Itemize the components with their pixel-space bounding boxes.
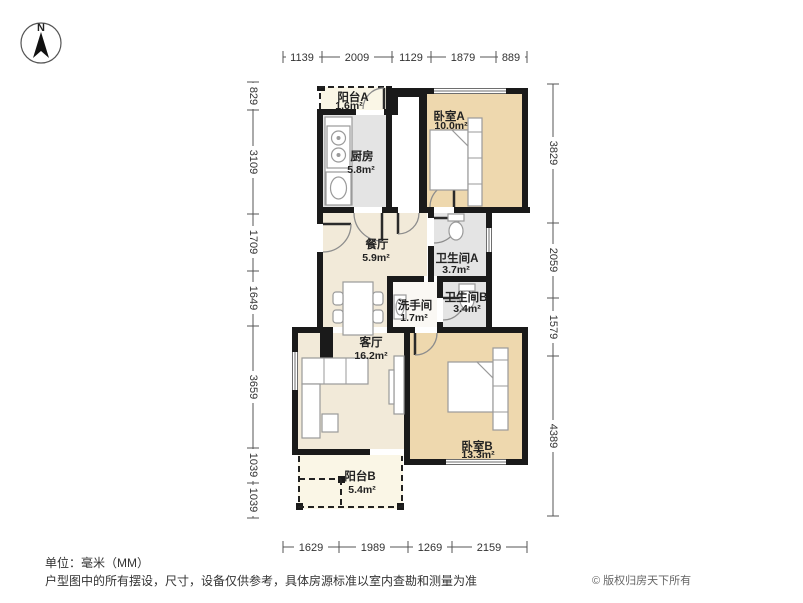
dim-top-2: 1129 bbox=[399, 52, 423, 64]
toilet-icon bbox=[448, 214, 464, 240]
floorplan-page: N bbox=[0, 0, 803, 603]
kitchen-counter-icon bbox=[325, 117, 352, 205]
disclaimer-text: 户型图中的所有摆设，尺寸，设备仅供参考，具体房源标准以室内查勘和测量为准 bbox=[45, 573, 477, 588]
coffee-table-icon bbox=[322, 414, 338, 432]
dim-top-3: 1879 bbox=[451, 52, 475, 64]
dimension-left: 829 3109 1709 1649 3659 1039 1039 bbox=[246, 82, 261, 518]
dining-area: 5.9m² bbox=[362, 252, 390, 264]
dim-right-0: 3829 bbox=[547, 141, 559, 165]
bathroom-b-area: 3.4m² bbox=[453, 303, 481, 315]
dim-top-4: 889 bbox=[502, 52, 520, 64]
wardrobe-icon bbox=[468, 118, 482, 206]
dim-top-1: 2009 bbox=[345, 52, 369, 64]
kitchen-area: 5.8m² bbox=[347, 164, 375, 176]
balcony-b-label: 阳台B bbox=[344, 469, 375, 483]
bedroom-b-area: 13.3m² bbox=[461, 449, 495, 461]
washroom-area: 1.7m² bbox=[400, 312, 428, 324]
bathroom-a-area: 3.7m² bbox=[442, 264, 470, 276]
dim-left-2: 1709 bbox=[247, 230, 259, 254]
window bbox=[292, 352, 298, 390]
dim-top-0: 1139 bbox=[290, 52, 314, 64]
dim-left-3: 1649 bbox=[247, 286, 259, 310]
wardrobe-icon bbox=[493, 348, 508, 430]
dim-right-2: 1579 bbox=[547, 315, 559, 339]
dim-left-1: 3109 bbox=[247, 150, 259, 174]
dim-left-0: 829 bbox=[247, 87, 259, 105]
living-area: 16.2m² bbox=[354, 350, 388, 362]
compass-icon: N bbox=[21, 22, 61, 63]
bathroom-a-label: 卫生间A bbox=[436, 251, 479, 265]
bed-icon bbox=[430, 130, 468, 190]
dim-right-1: 2059 bbox=[547, 248, 559, 272]
bedroom-a-area: 10.0m² bbox=[434, 120, 468, 132]
dim-left-5: 1039 bbox=[247, 453, 259, 477]
balcony-b-area: 5.4m² bbox=[348, 484, 376, 496]
window bbox=[434, 88, 506, 94]
washroom-label: 洗手间 bbox=[398, 298, 433, 312]
balcony-a-area: 1.6m² bbox=[335, 100, 363, 112]
kitchen-label: 厨房 bbox=[351, 149, 374, 163]
dim-bottom-0: 1629 bbox=[299, 542, 323, 554]
dim-bottom-1: 1989 bbox=[361, 542, 385, 554]
copyright-text: © 版权归房天下所有 bbox=[592, 573, 691, 587]
dim-right-3: 4389 bbox=[547, 424, 559, 448]
window bbox=[486, 228, 492, 252]
dimension-top: 1139 2009 1129 1879 889 bbox=[283, 50, 527, 64]
dim-bottom-2: 1269 bbox=[418, 542, 442, 554]
floorplan-canvas: N bbox=[0, 0, 803, 603]
dim-left-6: 1039 bbox=[247, 488, 259, 512]
dimension-right: 3829 2059 1579 4389 bbox=[546, 84, 561, 516]
dimension-bottom: 1629 1989 1269 2159 bbox=[283, 540, 527, 554]
dim-bottom-3: 2159 bbox=[477, 542, 501, 554]
bed-icon bbox=[448, 362, 493, 412]
dining-label: 餐厅 bbox=[365, 237, 389, 251]
dim-left-4: 3659 bbox=[247, 375, 259, 399]
living-label: 客厅 bbox=[359, 335, 383, 349]
bathroom-b-label: 卫生间B bbox=[445, 290, 488, 304]
unit-note: 单位：毫米（MM） bbox=[45, 555, 149, 570]
footer: 单位：毫米（MM） 户型图中的所有摆设，尺寸，设备仅供参考，具体房源标准以室内查… bbox=[45, 555, 691, 588]
